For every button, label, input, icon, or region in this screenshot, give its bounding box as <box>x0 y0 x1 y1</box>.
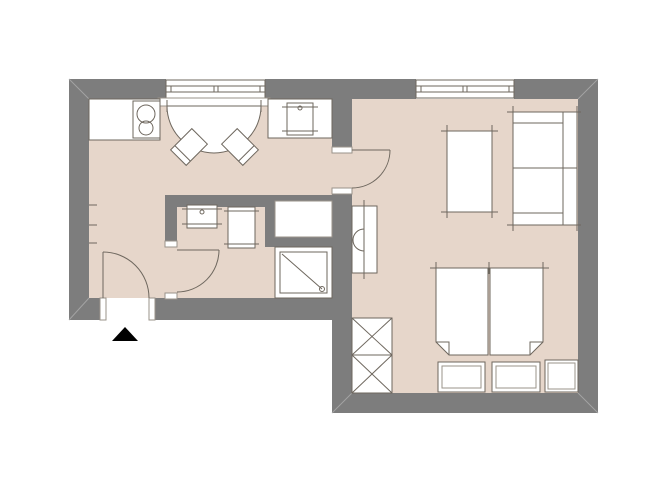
living-door-jamb-top <box>332 147 352 153</box>
kitchen-sink <box>287 103 313 135</box>
living-door-jamb-bottom <box>332 188 352 194</box>
entrance-marker <box>112 327 138 341</box>
kitchen-window-sill <box>158 98 270 106</box>
floor-plan <box>0 0 670 503</box>
wall-bottom <box>332 393 598 413</box>
wall-living-left-lower <box>332 194 352 393</box>
bathroom-door-jamb-top <box>165 241 177 247</box>
wall-niche-left <box>265 201 275 247</box>
wall-left <box>69 79 89 320</box>
toilet <box>228 207 255 248</box>
living-window-frame <box>416 80 514 98</box>
kitchen-window-frame <box>166 80 265 98</box>
floor-bath-door-opening <box>165 247 177 293</box>
wall-living-left-upper <box>332 99 352 147</box>
wall-niche-bottom <box>275 237 332 247</box>
wall-entry-left <box>69 298 100 320</box>
wall-bath-top-thin <box>265 195 345 201</box>
living-table <box>447 131 492 212</box>
wall-right <box>578 79 598 413</box>
floor-living-door-opening <box>332 153 352 188</box>
washbasin <box>187 205 217 228</box>
floor-plan-canvas <box>0 0 670 503</box>
wall-top-mid <box>265 79 416 99</box>
wall-entry-right <box>155 298 352 320</box>
wall-bath-left <box>165 207 177 241</box>
entrance-door-jamb-left <box>100 298 106 320</box>
nightstand <box>545 360 578 392</box>
entrance-door-jamb-right <box>149 298 155 320</box>
utility-niche <box>275 201 332 237</box>
cooktop <box>133 101 160 138</box>
bathroom-door-jamb-bottom <box>165 293 177 299</box>
